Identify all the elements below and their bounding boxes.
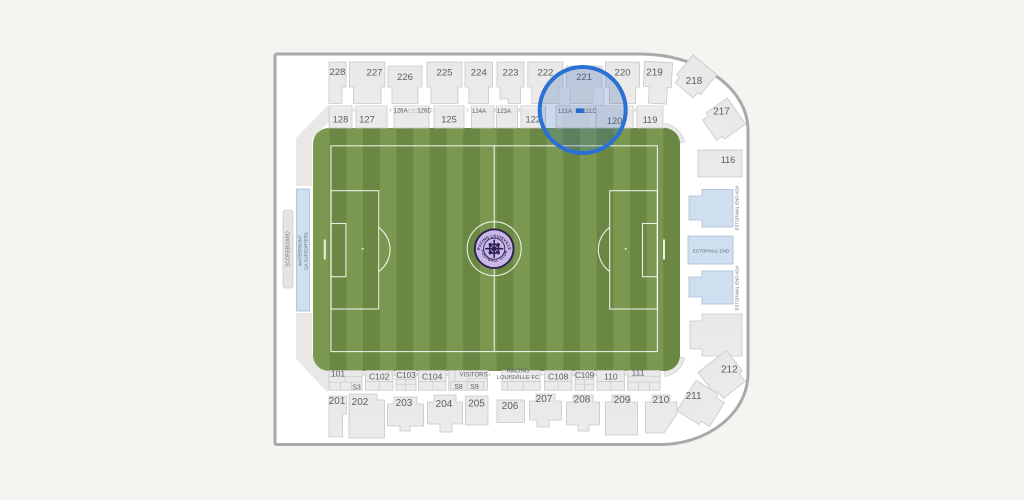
svg-text:S8: S8 [454,384,463,391]
svg-text:225: 225 [436,68,452,79]
svg-text:RACING: RACING [507,369,530,375]
svg-text:211: 211 [686,391,702,402]
svg-text:209: 209 [614,395,631,406]
svg-text:123A: 123A [497,109,511,115]
svg-text:125: 125 [441,114,457,124]
svg-text:C108: C108 [548,372,569,382]
svg-text:101: 101 [331,369,345,379]
svg-text:227: 227 [366,68,382,79]
svg-text:222: 222 [537,68,553,79]
svg-text:119: 119 [643,115,658,125]
svg-text:126D: 126D [417,109,432,115]
svg-text:124A: 124A [472,109,486,115]
svg-text:C109: C109 [575,371,595,380]
svg-text:205: 205 [468,399,485,410]
svg-text:GA SUPPORTERS: GA SUPPORTERS [303,232,308,270]
svg-text:224: 224 [471,68,488,79]
svg-text:C103: C103 [396,371,416,380]
svg-text:207: 207 [536,394,553,405]
svg-text:223: 223 [502,68,518,79]
svg-text:203: 203 [396,398,413,409]
svg-text:202: 202 [352,397,369,408]
svg-text:LOUISVILLE FC: LOUISVILLE FC [497,375,540,381]
svg-text:204: 204 [436,399,453,410]
svg-text:127: 127 [359,114,375,124]
svg-text:212: 212 [721,365,738,376]
svg-text:228: 228 [329,67,345,78]
svg-text:126A: 126A [393,109,407,115]
svg-text:206: 206 [502,401,519,412]
svg-text:201: 201 [329,396,346,407]
svg-text:C104: C104 [422,372,443,382]
svg-text:111: 111 [632,367,645,377]
svg-text:ESTOPINAL END ADA: ESTOPINAL END ADA [735,185,740,230]
svg-text:218: 218 [686,76,703,87]
svg-text:210: 210 [653,395,670,406]
svg-text:S9: S9 [470,384,479,391]
svg-text:C102: C102 [369,372,390,382]
svg-text:S3: S3 [352,384,361,391]
svg-text:ESTOPINAL END: ESTOPINAL END [693,249,730,254]
svg-text:128: 128 [333,114,349,124]
svg-text:208: 208 [574,395,591,406]
svg-text:ESTOPINAL END ADA: ESTOPINAL END ADA [735,265,740,310]
svg-text:110: 110 [604,372,618,382]
svg-text:SCOREBOARD: SCOREBOARD [286,231,292,267]
svg-text:VISITORS: VISITORS [460,372,488,378]
svg-text:217: 217 [713,107,730,118]
svg-text:WATERFRONT: WATERFRONT [297,235,302,266]
svg-text:226: 226 [397,72,413,83]
svg-text:116: 116 [721,155,735,165]
svg-text:219: 219 [646,68,663,79]
svg-text:220: 220 [614,68,630,79]
